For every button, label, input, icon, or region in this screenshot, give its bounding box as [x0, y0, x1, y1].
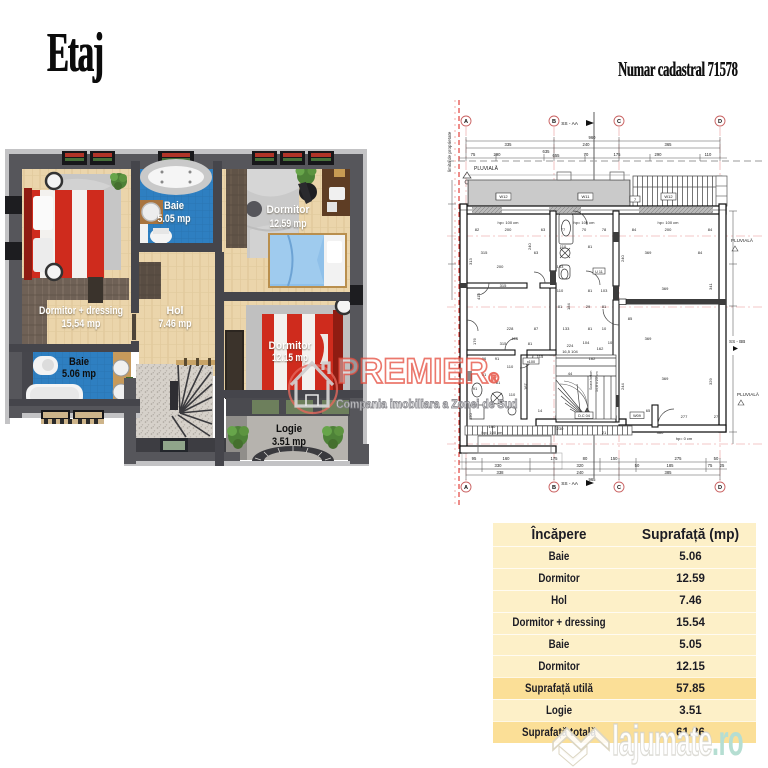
svg-text:110: 110: [507, 364, 514, 369]
svg-text:329: 329: [708, 378, 713, 385]
svg-text:PLUVIALĂ: PLUVIALĂ: [474, 165, 499, 172]
svg-text:C: C: [617, 119, 621, 125]
svg-text:Scara beton: Scara beton: [589, 371, 593, 390]
svg-text:635: 635: [543, 149, 551, 154]
svg-text:162: 162: [589, 356, 596, 361]
svg-text:10: 10: [602, 326, 607, 331]
svg-text:10: 10: [608, 340, 613, 345]
svg-text:176: 176: [472, 338, 477, 345]
svg-text:315: 315: [481, 250, 488, 255]
svg-text:hp= 100 cm: hp= 100 cm: [573, 220, 595, 225]
svg-text:110: 110: [557, 288, 564, 293]
svg-text:65: 65: [646, 408, 651, 413]
svg-text:81: 81: [588, 326, 593, 331]
svg-text:175: 175: [614, 152, 622, 157]
svg-text:240: 240: [620, 255, 625, 262]
svg-text:16,5 104: 16,5 104: [562, 349, 578, 354]
svg-text:369: 369: [645, 336, 652, 341]
svg-text:80: 80: [583, 456, 588, 461]
svg-text:81: 81: [528, 341, 533, 346]
svg-text:A: A: [464, 119, 468, 125]
svg-text:84: 84: [698, 250, 703, 255]
svg-text:369: 369: [662, 376, 669, 381]
svg-text:290: 290: [494, 152, 502, 157]
svg-text:W11: W11: [582, 194, 591, 199]
svg-text:150: 150: [611, 456, 619, 461]
svg-text:365: 365: [665, 142, 673, 147]
svg-text:B: B: [552, 485, 556, 491]
svg-text:330: 330: [495, 463, 503, 468]
svg-text:240: 240: [577, 470, 585, 475]
svg-text:81: 81: [588, 244, 593, 249]
svg-text:W09: W09: [633, 414, 641, 418]
svg-text:240: 240: [583, 142, 591, 147]
svg-text:50: 50: [714, 456, 719, 461]
svg-text:SS - BB: SS - BB: [729, 339, 745, 344]
svg-text:162: 162: [597, 346, 604, 351]
svg-text:14,8 x 25 cm: 14,8 x 25 cm: [595, 371, 599, 392]
svg-text:U 11: U 11: [595, 270, 603, 274]
svg-text:244: 244: [620, 383, 625, 390]
svg-text:75: 75: [708, 463, 713, 468]
svg-text:960: 960: [589, 135, 597, 140]
svg-text:313: 313: [468, 258, 473, 265]
svg-text:hp= 100 cm: hp= 100 cm: [657, 220, 679, 225]
svg-text:655: 655: [553, 153, 561, 158]
svg-text:75: 75: [471, 152, 476, 157]
svg-text:240: 240: [527, 243, 532, 250]
svg-text:200: 200: [497, 264, 504, 269]
svg-text:338: 338: [497, 470, 505, 475]
svg-text:81: 81: [588, 288, 593, 293]
svg-text:PLUVIALĂ: PLUVIALĂ: [737, 391, 760, 397]
svg-text:78: 78: [602, 227, 607, 232]
svg-text:167: 167: [523, 383, 528, 390]
svg-text:SS - AA: SS - AA: [561, 121, 579, 127]
svg-text:200: 200: [505, 227, 512, 232]
svg-text:103: 103: [601, 288, 608, 293]
svg-text:230: 230: [557, 426, 564, 431]
svg-text:87: 87: [534, 326, 539, 331]
svg-text:95: 95: [472, 456, 477, 461]
svg-text:185: 185: [667, 463, 675, 468]
svg-text:369: 369: [662, 286, 669, 291]
svg-text:PLUVIALĂ: PLUVIALĂ: [731, 237, 754, 243]
svg-text:B: B: [552, 119, 556, 125]
svg-text:85: 85: [628, 316, 633, 321]
svg-text:82: 82: [475, 227, 480, 232]
svg-text:27: 27: [714, 414, 719, 419]
svg-text:C: C: [617, 485, 621, 491]
svg-text:133: 133: [563, 326, 570, 331]
svg-text:84: 84: [708, 227, 713, 232]
svg-text:21: 21: [602, 430, 607, 435]
svg-text:965: 965: [589, 477, 597, 482]
svg-text:70: 70: [582, 227, 587, 232]
svg-text:limita de proprietate: limita de proprietate: [447, 131, 452, 172]
svg-text:275: 275: [675, 456, 683, 461]
svg-text:175: 175: [551, 456, 559, 461]
svg-text:160: 160: [503, 456, 511, 461]
svg-text:70: 70: [584, 152, 589, 157]
svg-text:341: 341: [708, 283, 713, 290]
svg-text:116: 116: [512, 336, 519, 341]
svg-text:200: 200: [665, 227, 672, 232]
svg-text:84: 84: [632, 227, 637, 232]
svg-text:7: 7: [634, 198, 636, 202]
svg-text:290: 290: [655, 152, 663, 157]
svg-text:228: 228: [507, 326, 514, 331]
svg-text:385: 385: [665, 470, 673, 475]
svg-text:D: D: [718, 119, 722, 125]
svg-text:335: 335: [505, 142, 513, 147]
svg-text:63: 63: [541, 227, 546, 232]
svg-text:369: 369: [645, 250, 652, 255]
svg-text:81: 81: [602, 304, 607, 309]
svg-text:hp= 0 cm: hp= 0 cm: [676, 436, 693, 441]
svg-text:44: 44: [568, 371, 573, 376]
svg-text:110: 110: [560, 244, 567, 249]
svg-text:224: 224: [567, 343, 574, 348]
svg-text:81: 81: [558, 304, 563, 309]
svg-text:315: 315: [500, 283, 507, 288]
svg-text:A: A: [464, 485, 468, 491]
svg-text:104: 104: [583, 340, 590, 345]
svg-text:320: 320: [577, 463, 585, 468]
svg-text:hp= 100 cm: hp= 100 cm: [497, 220, 519, 225]
svg-text:SS - AA: SS - AA: [561, 481, 579, 487]
svg-text:hp= 100 cm: hp= 100 cm: [481, 430, 503, 435]
svg-text:360: 360: [657, 430, 664, 435]
svg-text:160: 160: [489, 424, 496, 429]
svg-text:110: 110: [705, 152, 712, 157]
svg-text:277: 277: [681, 414, 688, 419]
svg-text:W12: W12: [664, 194, 673, 199]
svg-text:D.C 04: D.C 04: [578, 414, 590, 418]
svg-text:77: 77: [561, 227, 566, 232]
svg-text:63: 63: [534, 250, 539, 255]
svg-text:315: 315: [500, 341, 507, 346]
svg-text:W12: W12: [499, 194, 508, 199]
svg-text:50: 50: [635, 463, 640, 468]
svg-text:x100: x100: [527, 360, 535, 364]
svg-text:184: 184: [566, 303, 571, 310]
svg-text:25: 25: [720, 463, 725, 468]
svg-text:29: 29: [586, 304, 591, 309]
svg-text:D: D: [718, 485, 722, 491]
svg-text:133: 133: [557, 264, 564, 269]
svg-text:413: 413: [476, 293, 481, 300]
